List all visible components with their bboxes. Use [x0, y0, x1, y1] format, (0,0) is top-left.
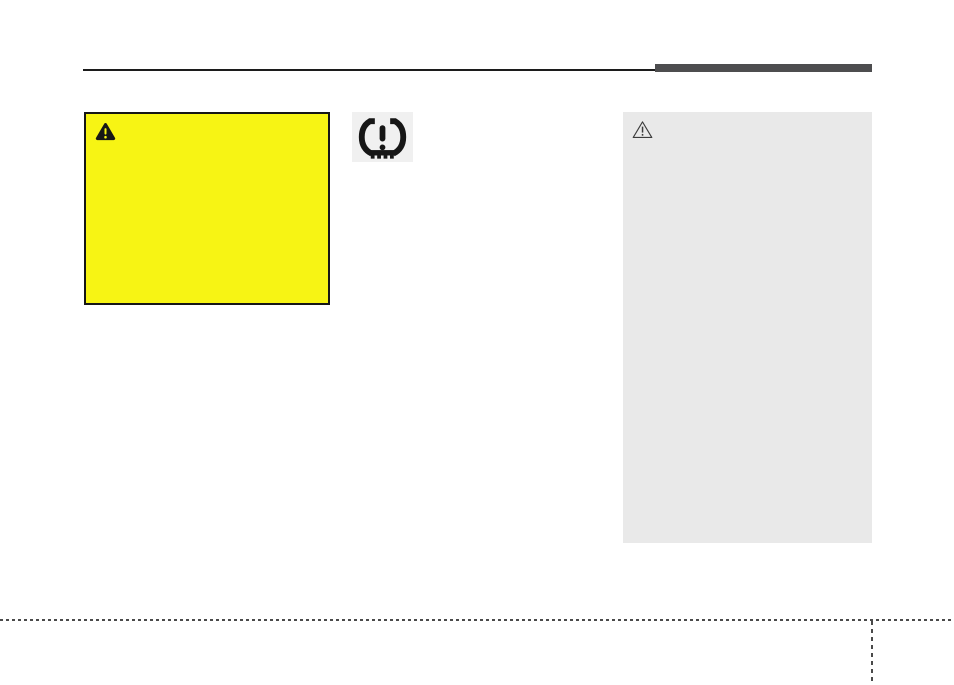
- header-accent-bar: [655, 64, 872, 72]
- caution-callout-box: [623, 112, 872, 543]
- caution-exclamation-dot: [642, 134, 644, 136]
- warning-triangle-icon: [95, 122, 116, 141]
- tpms-exclamation-bar: [380, 125, 386, 141]
- warning-exclamation-bar: [104, 128, 106, 134]
- footer-vertical-dashed-rule: [871, 621, 873, 685]
- caution-exclamation-bar: [642, 127, 643, 133]
- warning-callout-box: [84, 112, 330, 305]
- caution-triangle-outline-icon: [632, 120, 653, 139]
- header-rule: [83, 69, 655, 71]
- tpms-tire-tread: [369, 150, 395, 159]
- tpms-indicator-chip: [352, 112, 413, 162]
- tpms-low-tire-pressure-icon: [355, 114, 410, 160]
- tpms-exclamation-dot: [380, 144, 386, 150]
- footer-dashed-rule: [0, 619, 954, 621]
- warning-exclamation-dot: [104, 136, 107, 139]
